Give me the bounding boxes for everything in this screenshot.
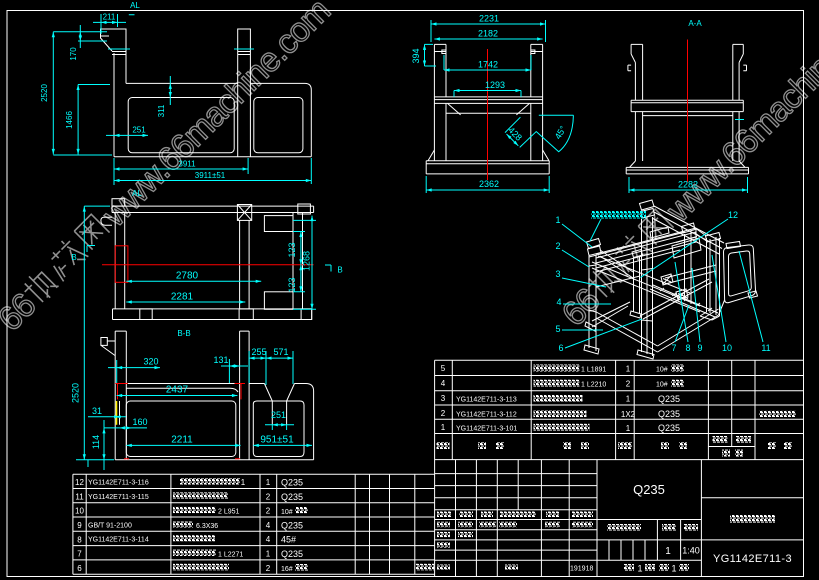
svg-text:YG1142E711-3-114: YG1142E711-3-114 (88, 537, 149, 544)
svg-text:B: B (71, 253, 76, 262)
svg-text:Q235: Q235 (658, 409, 680, 419)
svg-text:2362: 2362 (479, 179, 499, 189)
svg-text:AL: AL (130, 1, 140, 10)
svg-text:1268: 1268 (302, 251, 312, 271)
svg-text:3911±51: 3911±51 (195, 171, 226, 180)
svg-text:2520: 2520 (71, 383, 81, 403)
svg-text:5: 5 (441, 364, 446, 373)
svg-text:123: 123 (287, 242, 297, 257)
svg-text:1: 1 (441, 423, 446, 432)
svg-text:GB/T 91-2100: GB/T 91-2100 (88, 522, 132, 529)
svg-text:9: 9 (697, 343, 702, 353)
svg-text:Q235: Q235 (281, 520, 303, 530)
svg-text:2231: 2231 (479, 14, 499, 24)
svg-text:2: 2 (266, 507, 271, 516)
svg-text:1: 1 (626, 365, 631, 374)
svg-text:B: B (337, 266, 342, 275)
svg-text:2 L951: 2 L951 (218, 509, 240, 516)
svg-text:5: 5 (555, 324, 560, 334)
svg-text:YG1142E711-3: YG1142E711-3 (713, 553, 792, 565)
svg-text:6: 6 (77, 564, 82, 573)
svg-text:8: 8 (77, 535, 82, 544)
svg-text:1 L1891: 1 L1891 (581, 367, 606, 374)
svg-text:1: 1 (665, 546, 671, 557)
svg-text:A-A: A-A (688, 19, 702, 28)
svg-text:31: 31 (92, 406, 102, 416)
svg-text:114: 114 (91, 435, 101, 449)
svg-text:4: 4 (556, 297, 561, 307)
svg-text:Q235: Q235 (281, 492, 303, 502)
svg-text:YG1142E711-3-113: YG1142E711-3-113 (456, 397, 517, 404)
svg-text:2282: 2282 (678, 180, 698, 190)
svg-text:16#: 16# (281, 566, 293, 573)
svg-text:9: 9 (77, 521, 82, 530)
svg-text:10: 10 (722, 343, 732, 353)
svg-text:8: 8 (685, 343, 690, 353)
svg-text:170: 170 (69, 47, 78, 61)
svg-text:2: 2 (266, 492, 271, 501)
svg-text:2520: 2520 (40, 84, 49, 102)
svg-text:1: 1 (266, 478, 271, 487)
svg-text:10#: 10# (656, 367, 668, 374)
svg-text:1 L2210: 1 L2210 (581, 382, 606, 389)
svg-text:Q235: Q235 (281, 478, 303, 488)
svg-text:7: 7 (77, 550, 82, 559)
svg-text:394: 394 (411, 48, 421, 63)
svg-text:B-B: B-B (177, 329, 190, 338)
svg-text:1466: 1466 (65, 111, 74, 129)
svg-text:2780: 2780 (176, 271, 199, 282)
svg-text:571: 571 (273, 347, 288, 357)
svg-text:3911: 3911 (178, 160, 196, 169)
svg-text:2: 2 (555, 241, 560, 251)
svg-text:123: 123 (287, 277, 297, 292)
svg-text:Q235: Q235 (658, 423, 680, 433)
svg-text:3: 3 (441, 394, 446, 403)
svg-text:1 L2271: 1 L2271 (218, 551, 243, 558)
svg-text:10#: 10# (656, 382, 668, 389)
svg-text:320: 320 (143, 357, 158, 367)
svg-text:Q235: Q235 (658, 394, 680, 404)
svg-text:45#: 45# (281, 535, 296, 545)
svg-text:1: 1 (241, 478, 246, 487)
svg-text:311: 311 (157, 104, 166, 117)
svg-text:2: 2 (441, 409, 446, 418)
svg-text:1: 1 (266, 550, 271, 559)
svg-text:1: 1 (671, 564, 676, 574)
svg-text:2281: 2281 (171, 292, 194, 303)
svg-text:1X2: 1X2 (621, 410, 636, 419)
svg-text:2211: 2211 (171, 435, 193, 446)
svg-text:YG1142E711-3-116: YG1142E711-3-116 (88, 480, 149, 487)
svg-text:160: 160 (132, 417, 147, 427)
svg-text:2182: 2182 (478, 29, 498, 39)
svg-text:4: 4 (441, 379, 446, 388)
svg-text:3: 3 (555, 269, 560, 279)
svg-text:1: 1 (626, 395, 631, 404)
svg-text:6.3X36: 6.3X36 (196, 523, 218, 530)
svg-text:YG1142E711-3-112: YG1142E711-3-112 (456, 412, 517, 419)
svg-text:2: 2 (626, 380, 631, 389)
svg-text:YG1142E711-3-101: YG1142E711-3-101 (456, 426, 517, 433)
svg-text:1742: 1742 (478, 60, 498, 70)
svg-text:Q235: Q235 (633, 482, 665, 497)
svg-text:7: 7 (671, 343, 676, 353)
svg-text:4: 4 (266, 535, 271, 544)
svg-text:1293: 1293 (485, 80, 505, 90)
svg-text:YG1142E711-3-115: YG1142E711-3-115 (88, 494, 149, 501)
svg-text:255: 255 (251, 347, 266, 357)
svg-text:1: 1 (626, 424, 631, 433)
svg-text:1: 1 (637, 564, 642, 574)
svg-text:4: 4 (266, 521, 271, 530)
svg-text:251: 251 (271, 410, 286, 420)
svg-text:12: 12 (728, 210, 738, 220)
svg-text:2437: 2437 (166, 385, 189, 396)
svg-text:10: 10 (75, 507, 84, 516)
svg-text:12: 12 (75, 478, 84, 487)
svg-text:1:40: 1:40 (682, 546, 700, 556)
svg-text:6: 6 (558, 343, 563, 353)
svg-text:211: 211 (103, 13, 116, 22)
svg-text:11: 11 (75, 493, 84, 502)
svg-text:131: 131 (213, 355, 228, 365)
svg-text:Q235: Q235 (281, 549, 303, 559)
svg-text:951±51: 951±51 (260, 435, 294, 446)
svg-text:1: 1 (555, 215, 560, 225)
svg-text:191918: 191918 (570, 566, 593, 573)
svg-text:251: 251 (132, 126, 146, 135)
svg-text:AL: AL (132, 189, 142, 198)
svg-text:10#: 10# (281, 509, 293, 516)
svg-text:11: 11 (761, 343, 770, 353)
svg-text:2: 2 (266, 564, 271, 573)
